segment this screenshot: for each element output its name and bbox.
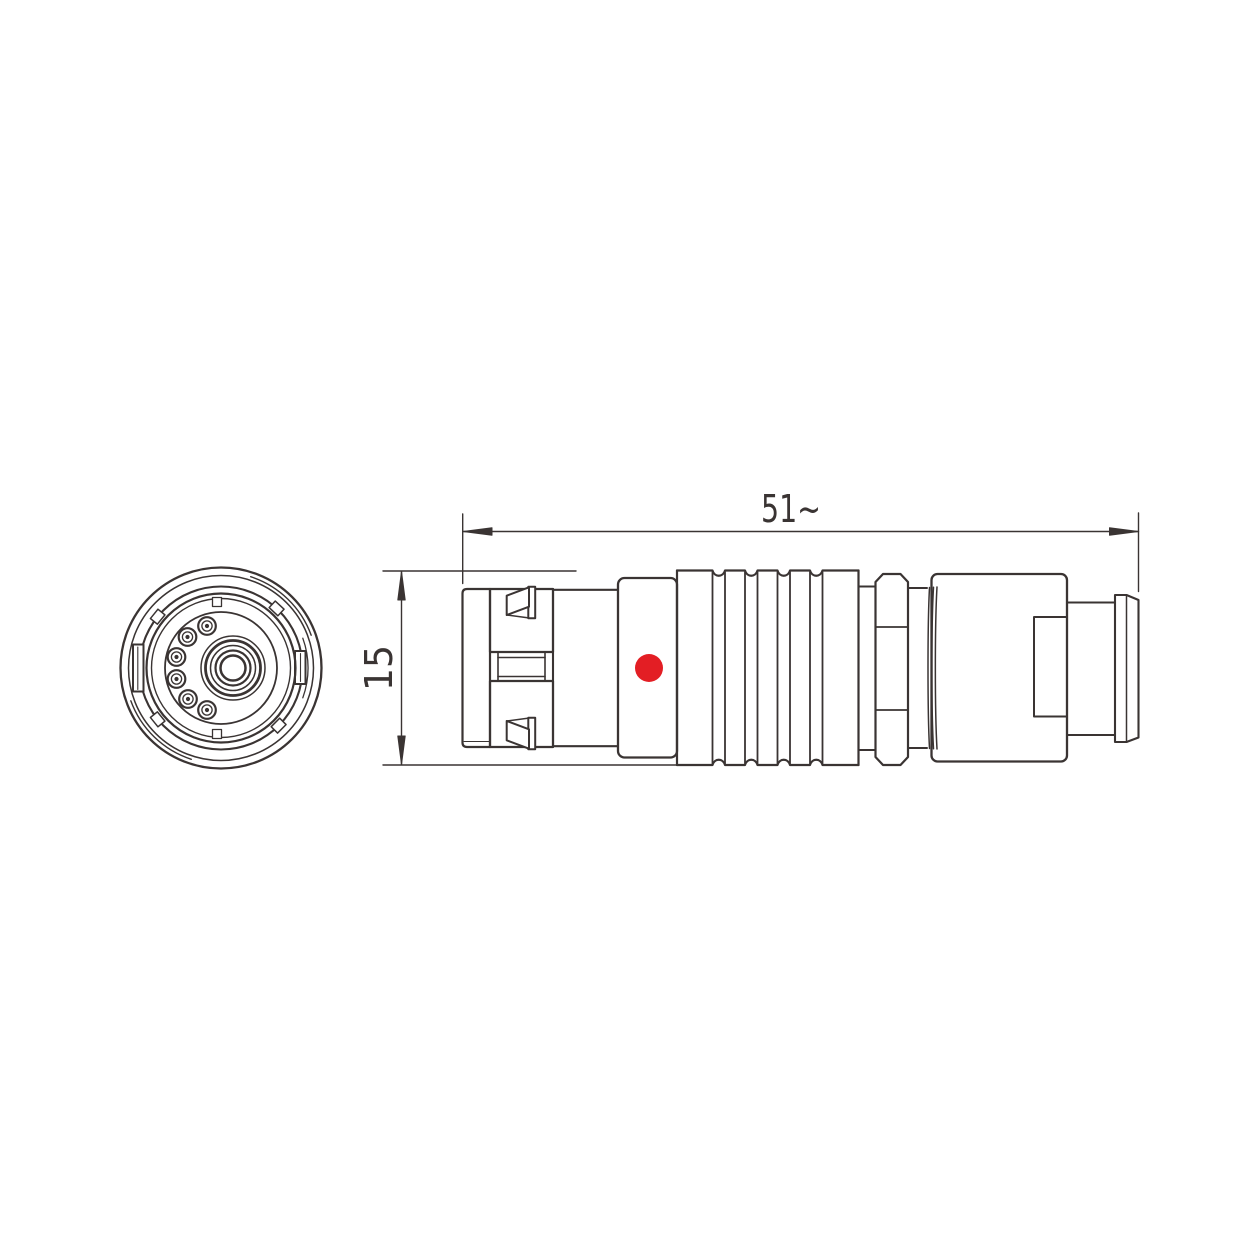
grip-end-edges bbox=[677, 571, 859, 766]
dim-label-length: 51~ bbox=[761, 487, 821, 531]
spacer-cylinder-2 bbox=[908, 588, 927, 748]
coax-center-ring bbox=[221, 656, 246, 681]
hex-nut bbox=[876, 574, 909, 765]
dimensions: 51~ 15 bbox=[357, 487, 1139, 765]
latch-stud-top bbox=[507, 587, 536, 619]
end-cap bbox=[1115, 595, 1139, 742]
arrowhead-up-icon bbox=[398, 572, 405, 601]
coax-outer-ring bbox=[206, 641, 261, 696]
side-view bbox=[463, 571, 1139, 766]
red-index-dot bbox=[635, 654, 663, 682]
hex-nut-outline bbox=[876, 574, 909, 765]
grip-ribs bbox=[677, 571, 859, 766]
stud-wedge bbox=[507, 721, 529, 749]
arrowhead-down-icon bbox=[398, 736, 405, 765]
pin-dot bbox=[205, 708, 209, 712]
stud-wedge bbox=[507, 587, 529, 615]
dimension-length: 51~ bbox=[463, 487, 1139, 592]
rear-body-outline bbox=[932, 574, 1068, 762]
grip-bottom-edge bbox=[677, 760, 859, 765]
latch-stud-bottom bbox=[507, 718, 536, 750]
nose-ring bbox=[463, 589, 491, 747]
collet-bridge bbox=[498, 658, 545, 677]
front-view bbox=[121, 568, 322, 769]
pin-dot bbox=[174, 677, 178, 681]
cable-bushing bbox=[1067, 603, 1115, 736]
coax-mid-ring bbox=[211, 646, 256, 691]
polarizing-notch-top bbox=[213, 598, 222, 607]
rib-lines bbox=[713, 572, 823, 764]
pin-dot bbox=[205, 624, 209, 628]
rear-body-step bbox=[1034, 617, 1067, 717]
coax-contact bbox=[201, 636, 265, 700]
mid-cylinder bbox=[553, 589, 618, 747]
polarizing-notch-bottom bbox=[213, 730, 222, 739]
pin-dot bbox=[186, 697, 190, 701]
connector-technical-drawing: 51~ 15 bbox=[0, 0, 1259, 1259]
grip-top-edge bbox=[677, 571, 859, 576]
pin-dot bbox=[185, 635, 189, 639]
drawing-root: 51~ 15 bbox=[121, 487, 1139, 769]
pin-contacts bbox=[168, 617, 216, 719]
arrowhead-right-icon bbox=[1110, 528, 1139, 535]
hex-nut-flats bbox=[876, 627, 909, 710]
dim-label-diameter: 15 bbox=[357, 645, 401, 691]
pin-dot bbox=[174, 655, 178, 659]
rear-body bbox=[932, 574, 1068, 762]
drawing-canvas: 51~ 15 bbox=[0, 0, 1259, 1259]
stud-edge-line bbox=[507, 718, 529, 721]
spacer-cylinder bbox=[859, 587, 876, 751]
stud-edge-line bbox=[507, 615, 529, 618]
arrowhead-left-icon bbox=[463, 528, 492, 535]
